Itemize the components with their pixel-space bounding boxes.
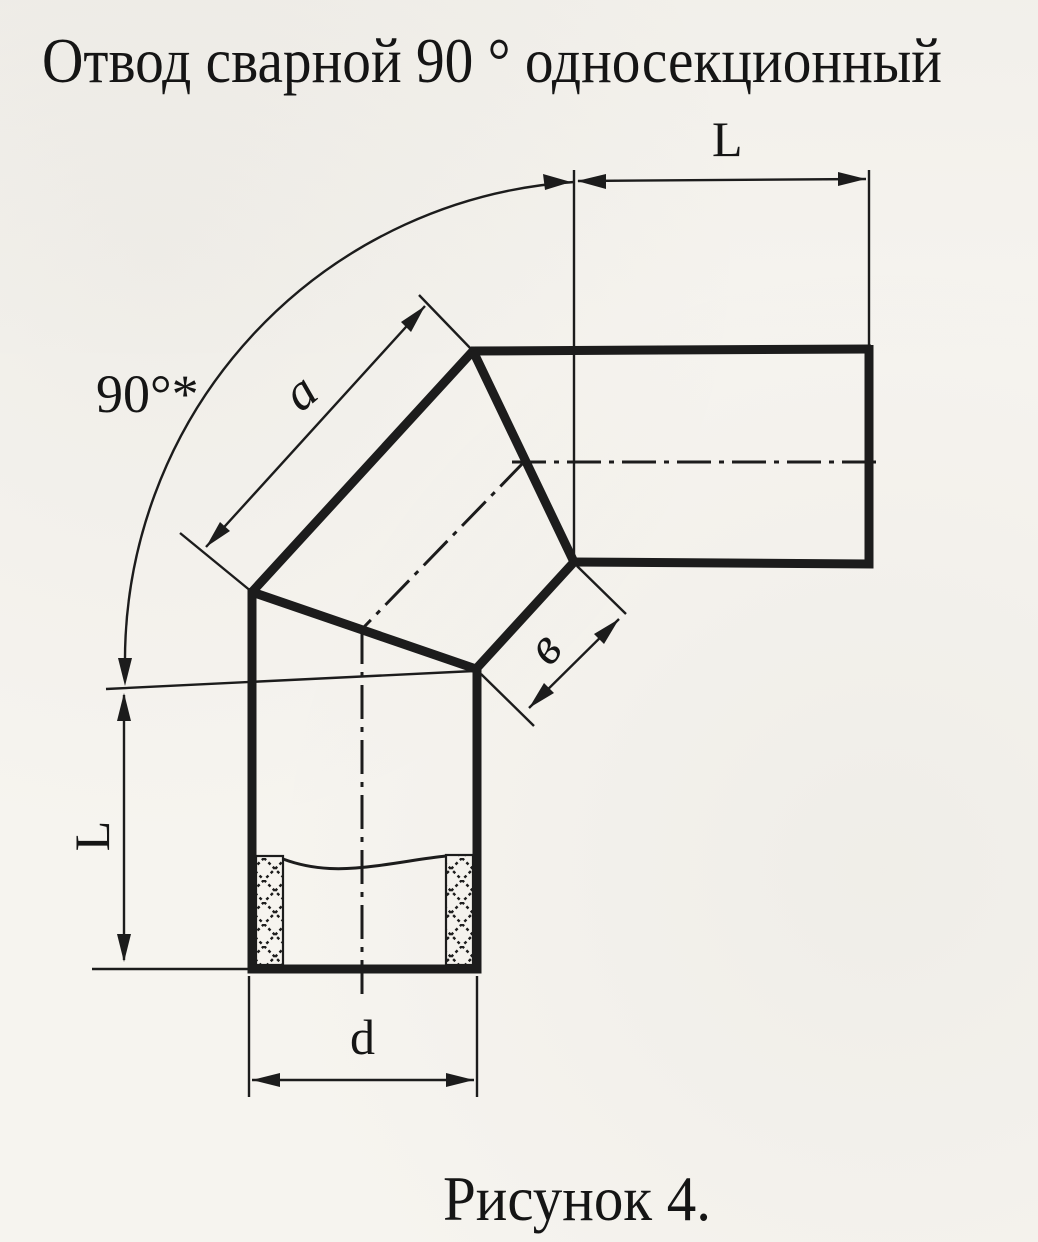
weld-seam-lower	[252, 592, 476, 669]
horizontal-pipe-top-and-section-outer-edge	[252, 349, 871, 592]
wall-hatch-left	[256, 856, 283, 965]
arc-arrowhead-top	[543, 174, 571, 190]
extension-line	[180, 533, 252, 592]
wall-hatch-right	[446, 855, 473, 965]
arrowhead-bottom	[117, 934, 131, 962]
horizontal-pipe-right-and-bottom-edge	[572, 345, 869, 564]
dimension-line	[206, 306, 425, 547]
extension-line	[481, 674, 534, 726]
dim-label-d: d	[350, 1009, 375, 1065]
dim-label-L-left: L	[64, 821, 120, 852]
dimension-a: a	[180, 295, 473, 592]
dimension-L-top: L	[574, 111, 869, 563]
dimension-line	[578, 179, 866, 181]
dim-label-a: a	[272, 362, 329, 422]
arc-arrowhead-bottom	[118, 658, 132, 686]
extension-line	[577, 566, 626, 614]
arrowhead-right	[446, 1073, 474, 1087]
dimension-angle-90: 90°*	[96, 174, 574, 686]
extension-line	[419, 295, 473, 351]
elbow-technical-drawing: L 90°* a в	[0, 0, 1038, 1242]
dim-label-L-top: L	[712, 111, 743, 167]
dimension-d: d	[249, 976, 477, 1097]
arrowhead-left	[577, 174, 606, 189]
arrowhead-right	[838, 172, 866, 186]
angle-label: 90°*	[96, 364, 199, 424]
dim-label-v: в	[515, 621, 573, 675]
miter-bisector-centerline	[364, 462, 524, 627]
arrowhead-top	[117, 693, 131, 721]
extension-line-top	[106, 671, 474, 689]
break-line	[283, 856, 446, 869]
pipe-wall-section	[256, 855, 473, 965]
figure-caption: Рисунок 4.	[443, 1163, 711, 1234]
vertical-pipe-left-bottom-right-edge	[252, 588, 477, 969]
drawing-title: Отвод сварной 90 ° односекционный	[42, 25, 942, 96]
weld-seam-upper	[473, 351, 574, 562]
centerlines	[362, 462, 878, 997]
arrowhead-left	[252, 1073, 280, 1087]
scanned-drawing-page: L 90°* a в	[0, 0, 1038, 1242]
